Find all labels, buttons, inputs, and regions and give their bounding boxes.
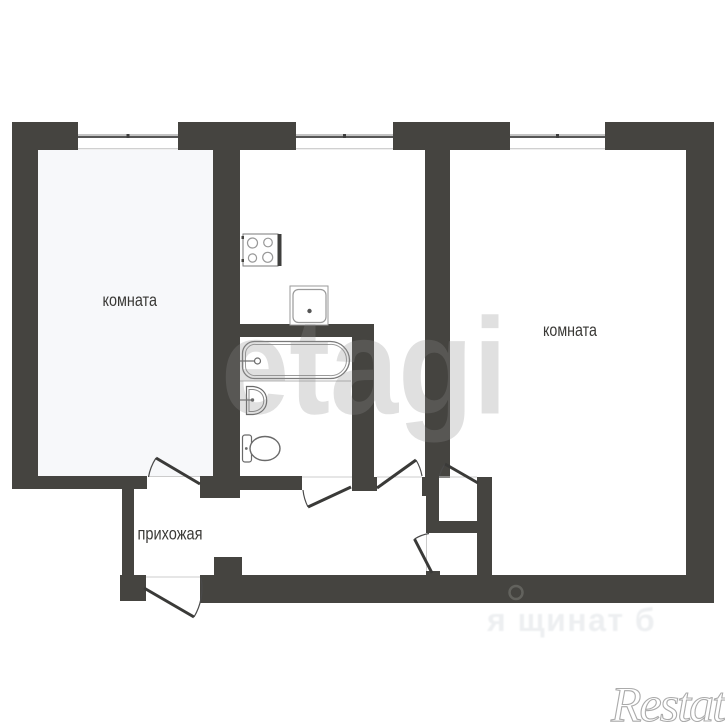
svg-text:комната: комната [103, 290, 158, 310]
svg-text:Restate: Restate [610, 676, 725, 725]
svg-text:комната: комната [543, 320, 597, 340]
svg-text:прихожая: прихожая [138, 524, 203, 544]
svg-text:я щинат б: я щинат б [486, 602, 656, 638]
svg-text:etagi: etagi [221, 289, 507, 443]
